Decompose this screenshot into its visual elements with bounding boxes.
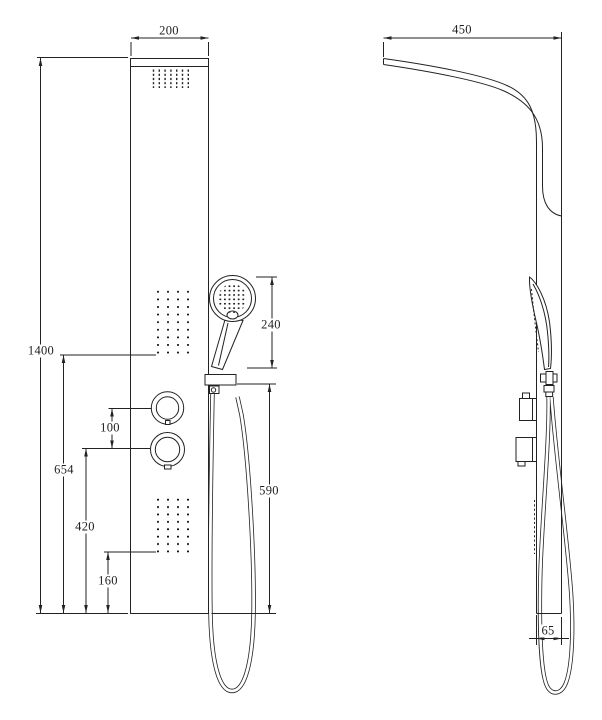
dim-label-panel-width: 200 <box>157 25 181 38</box>
side-hand-shower-hose <box>540 397 572 693</box>
technical-drawing: 200 450 1400 654 420 160 100 240 590 65 <box>0 0 602 720</box>
dim-label-upper-jets: 654 <box>52 464 76 477</box>
dim-label-side-top-depth: 450 <box>450 24 474 37</box>
dim-label-hand-shower: 240 <box>259 319 283 332</box>
front-view <box>131 59 256 614</box>
hose-holder <box>205 375 236 386</box>
drawing-linework <box>0 0 602 720</box>
dim-label-lower-knob: 420 <box>73 521 97 534</box>
lower-body-jets <box>153 496 193 554</box>
side-hand-shower <box>529 277 551 370</box>
side-view <box>384 32 562 614</box>
dim-label-knob-spacing: 100 <box>98 422 122 435</box>
dimension-arrows <box>39 36 562 640</box>
side-profile-outer <box>384 59 537 614</box>
dimension-lines <box>36 38 569 645</box>
hand-shower-spray-face <box>218 284 247 313</box>
dim-label-panel-thickness: 65 <box>539 625 556 638</box>
dim-label-lower-jets: 160 <box>96 575 120 588</box>
front-hand-shower-hose <box>210 394 253 691</box>
dim-label-panel-height: 1400 <box>26 345 56 358</box>
side-upper-knob <box>520 399 537 421</box>
rain-shower-nozzles <box>154 70 189 89</box>
side-lower-knob <box>516 438 537 462</box>
dim-label-holder-bottom: 590 <box>257 485 281 498</box>
upper-body-jets <box>153 288 193 354</box>
side-profile-inner <box>384 65 562 217</box>
